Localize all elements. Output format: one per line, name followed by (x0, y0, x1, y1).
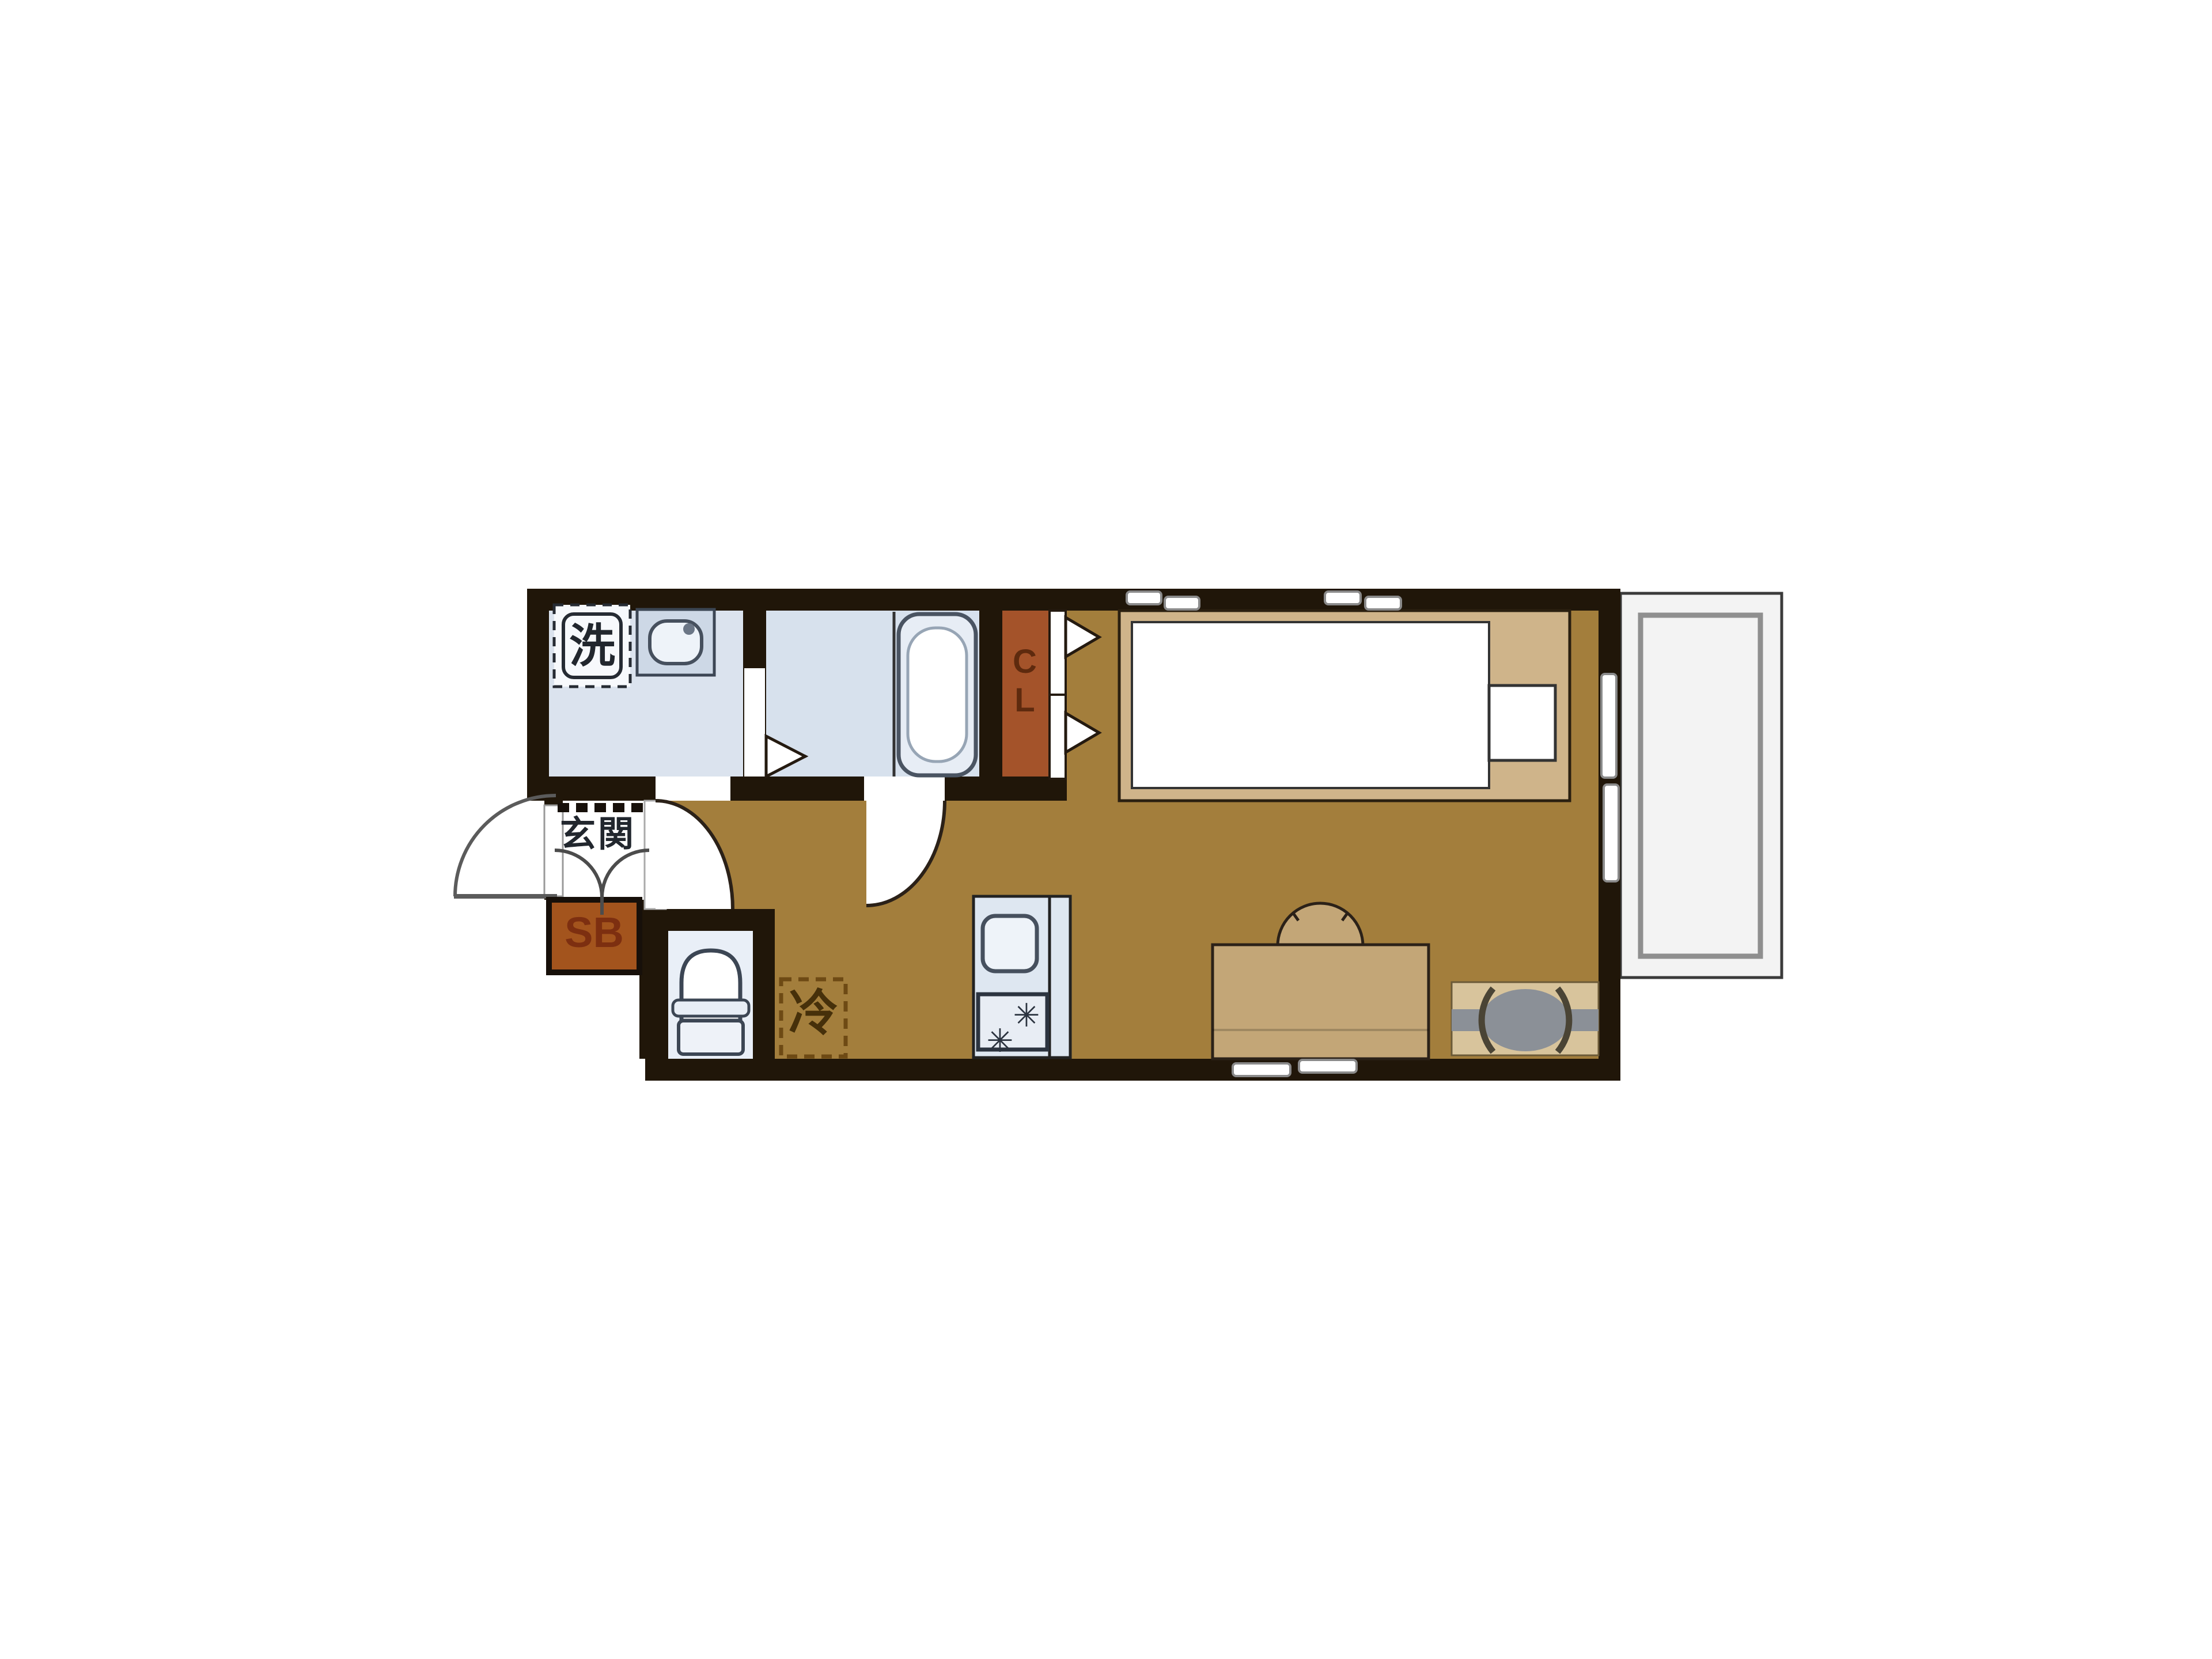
window-bottom (1299, 1060, 1357, 1073)
closet-label: CL (1006, 643, 1043, 719)
kitchen-unit: ✳ ✳ (974, 896, 1070, 1059)
window-balcony (1604, 785, 1619, 881)
wall-bottom (645, 1059, 1620, 1081)
faucet-icon (683, 623, 695, 635)
toilet-tank (679, 1021, 743, 1054)
bathroom-doorway (864, 777, 945, 801)
window-top-1 (1127, 592, 1161, 604)
front-door-arc (455, 796, 556, 896)
table (1213, 945, 1429, 1059)
floor-plan-page: ✳ ✳ (0, 0, 2212, 1659)
window-balcony (1601, 674, 1616, 778)
window-top-1 (1165, 597, 1199, 609)
bathtub-inner (908, 628, 967, 762)
wall-left (527, 589, 549, 801)
toilet-seat-hinge (673, 1000, 749, 1016)
kitchen-sink (983, 916, 1037, 971)
window-top-2 (1365, 597, 1401, 609)
balcony (1620, 593, 1782, 978)
washroom-doorway (656, 777, 730, 801)
wall-toilet-right (753, 909, 775, 1059)
bath-sliding-doorway (744, 668, 765, 777)
shoe-box-label: SB (549, 910, 639, 955)
wall-top (527, 589, 1620, 611)
bed (1119, 611, 1570, 801)
vanity-sink (637, 609, 714, 675)
stove-burner-icon: ✳ (987, 1022, 1014, 1059)
tv-stand (1452, 982, 1599, 1055)
washing-machine-label: 洗 (563, 622, 621, 671)
balcony-deck (1620, 593, 1782, 978)
bed-headboard-notch (1489, 685, 1555, 760)
refrigerator-label: 冷 (781, 987, 846, 1039)
stove-burner-icon: ✳ (1013, 997, 1040, 1033)
entrance-label: 玄関 (554, 816, 642, 853)
wall-bath-closet (979, 611, 1002, 777)
tv-stand-base (1482, 989, 1569, 1051)
bathtub (894, 612, 976, 777)
window-bottom (1233, 1063, 1290, 1076)
floor-plan-drawing: ✳ ✳ (0, 0, 2212, 1659)
wall-hall-north (527, 777, 1067, 801)
window-top-2 (1325, 592, 1361, 604)
toilet (673, 950, 749, 1054)
bed-mattress (1132, 622, 1489, 788)
